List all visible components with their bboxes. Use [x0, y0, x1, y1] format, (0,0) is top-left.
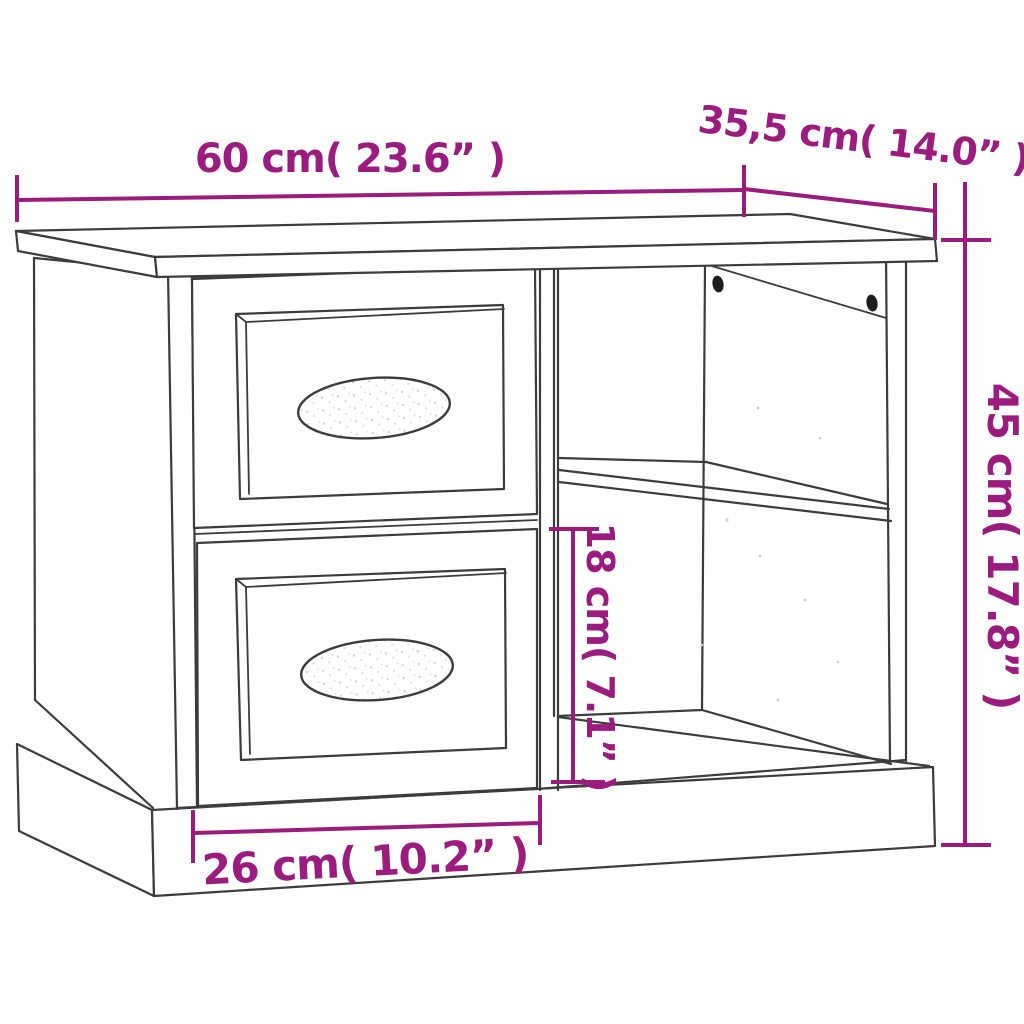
compartment-dimension-label: 18 cm( 7.1” ): [578, 523, 622, 792]
drawer-bottom: [197, 529, 537, 806]
cabinet-drawing: [16, 214, 937, 896]
diagram-canvas: 60 cm( 23.6” ) 35,5 cm( 14.0” ) 45 cm( 1…: [0, 0, 1024, 1024]
height-dimension-label: 45 cm( 17.8” ): [978, 383, 1024, 710]
side-panel-back-edge: [34, 258, 35, 700]
dimension-line: [744, 189, 935, 211]
dimension-line: [17, 190, 744, 200]
furniture-dimension-diagram: 60 cm( 23.6” ) 35,5 cm( 14.0” ) 45 cm( 1…: [0, 0, 1024, 1024]
plinth-left-face: [17, 744, 154, 896]
width-dimension-label: 60 cm( 23.6” ): [195, 136, 505, 182]
left-side-panel: [34, 258, 168, 808]
drawer-top: [192, 266, 537, 528]
